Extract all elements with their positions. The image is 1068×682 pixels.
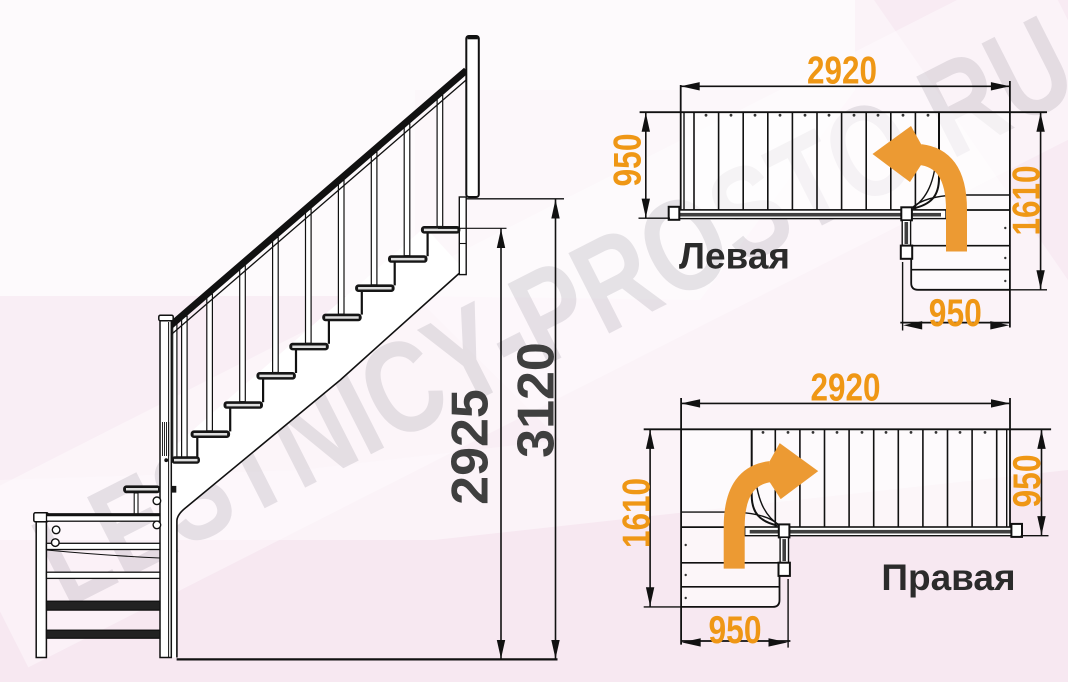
svg-text:Правая: Правая [881, 557, 1015, 598]
svg-text:950: 950 [709, 609, 762, 652]
svg-text:1610: 1610 [616, 478, 659, 548]
svg-text:1610: 1610 [1005, 166, 1048, 236]
svg-text:950: 950 [929, 292, 982, 335]
svg-text:950: 950 [1006, 455, 1049, 508]
svg-text:950: 950 [606, 134, 649, 187]
svg-text:2920: 2920 [811, 366, 881, 409]
svg-text:3120: 3120 [508, 342, 566, 458]
svg-text:2920: 2920 [807, 50, 877, 93]
svg-text:2925: 2925 [442, 389, 500, 505]
svg-text:Левая: Левая [679, 236, 790, 277]
